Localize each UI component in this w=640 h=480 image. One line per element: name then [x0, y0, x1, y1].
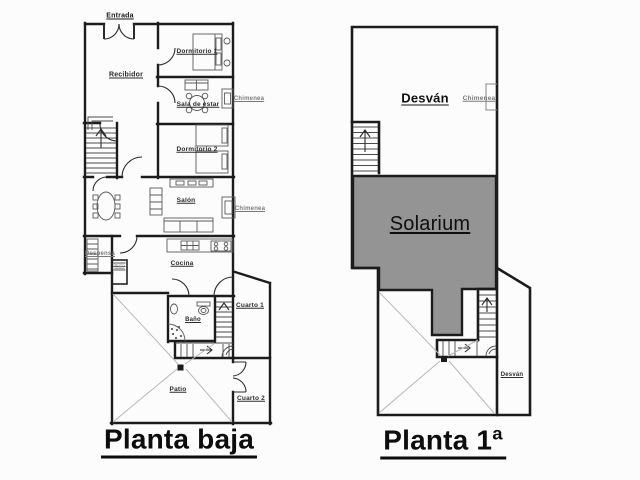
label-chimenea-salon: Chimenea [235, 206, 265, 212]
label-desvan: Desván [401, 92, 448, 105]
label-sala-de-estar: Sala de estar [177, 102, 220, 109]
floorplan-drawing [0, 0, 640, 480]
label-solarium: Solarium [390, 214, 471, 234]
first-floor-title: Planta 1ª [380, 427, 506, 460]
solarium-area [353, 176, 496, 335]
ground-floor-title: Planta baja [101, 426, 257, 459]
label-despensa: Despensa [85, 251, 115, 257]
label-salon: Salón [177, 198, 196, 205]
label-dormitorio-1: Dormitorio 1 [176, 49, 217, 56]
floorplan-canvas: Entrada Recibidor Dormitorio 1 Sala de e… [0, 0, 640, 480]
label-cuarto-2: Cuarto 2 [237, 396, 265, 403]
patio-post [178, 365, 184, 371]
label-chimenea-desvan: Chimenea [463, 96, 496, 103]
label-desvan-corridor: Desván [501, 372, 524, 378]
label-chimenea-sala: Chimenea [234, 96, 264, 102]
label-recibidor: Recibidor [109, 72, 143, 79]
label-entrada: Entrada [106, 13, 133, 20]
label-pozo: Pozo [114, 264, 124, 269]
label-bano: Baño [185, 317, 201, 323]
label-cocina: Cocina [171, 261, 194, 268]
label-cuarto-1: Cuarto 1 [236, 303, 264, 310]
label-dormitorio-2: Dormitorio 2 [176, 147, 217, 154]
patio-post [441, 356, 447, 362]
label-patio: Patio [170, 387, 187, 394]
